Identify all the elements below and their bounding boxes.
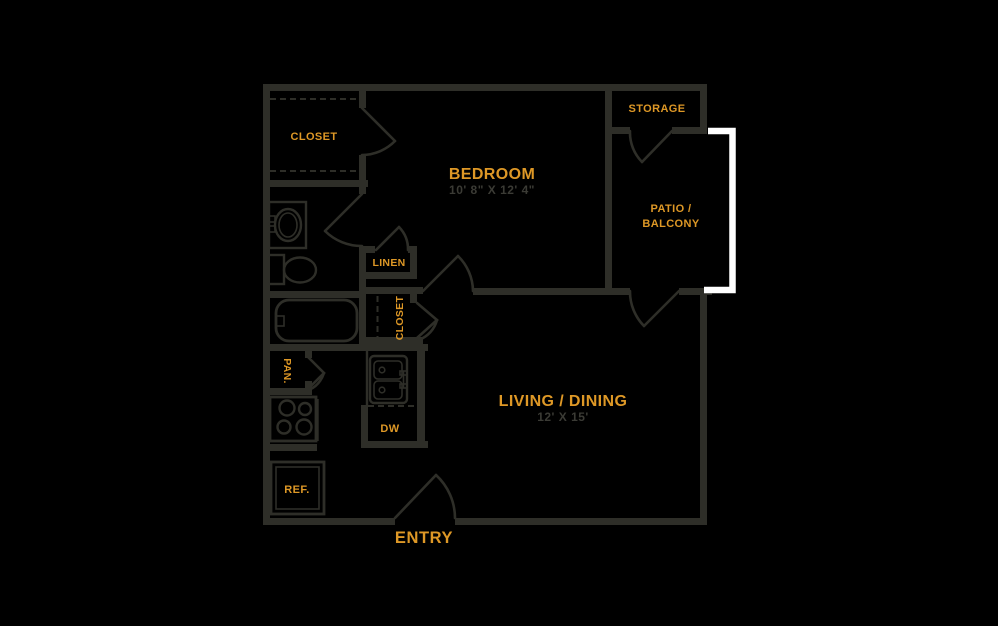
counter-edges: [318, 351, 368, 441]
patio-label-line2: BALCONY: [642, 218, 699, 230]
bathroom-door: [325, 194, 362, 246]
wall-bedroom-south: [473, 288, 630, 295]
bedroom-dimensions: 10' 8" X 12' 4": [449, 183, 535, 197]
wall-closet-right-mid: [359, 155, 366, 194]
pantry-label: PAN.: [281, 358, 293, 384]
entry-label: ENTRY: [395, 529, 453, 547]
dishwasher-label: DW: [380, 423, 399, 435]
floor-plan-page: CLOSET BEDROOM 10' 8" X 12' 4" STORAGE P…: [0, 0, 998, 626]
storage-door: [630, 131, 672, 162]
kitchen-sink-symbol: [370, 356, 407, 403]
linen-door: [376, 227, 408, 250]
wall-bottom-left: [263, 518, 395, 525]
storage-label: STORAGE: [629, 103, 686, 115]
bedroom-closet-door: [362, 108, 395, 155]
walls: [263, 84, 712, 525]
linen-label: LINEN: [373, 257, 406, 269]
refrigerator-label: REF.: [284, 484, 309, 496]
wall-linen-bottom: [359, 272, 417, 279]
wall-hall-closet-right: [410, 287, 417, 303]
wall-counter-left-lower: [361, 405, 368, 448]
wall-toilet-tub-divider: [263, 291, 366, 298]
living-dining-dimensions: 12' X 15': [537, 410, 589, 424]
wall-bottom-right: [455, 518, 707, 525]
wall-right-living: [700, 288, 707, 525]
living-dining-label: LIVING / DINING: [499, 393, 628, 410]
pantry-bifold-door: [308, 357, 324, 390]
wall-pantry-bottom: [263, 388, 312, 395]
wall-left: [263, 84, 270, 525]
wall-counter-right: [417, 348, 425, 447]
wall-top: [263, 84, 707, 91]
stove-symbol: [270, 397, 316, 441]
hall-closet-bifold-door: [417, 303, 437, 340]
bedroom-label: BEDROOM: [449, 166, 535, 183]
patio-railing: [704, 131, 733, 290]
bedroom-door: [423, 256, 473, 291]
bathroom-sink-symbol: [269, 202, 306, 248]
wall-stove-bottom: [263, 444, 317, 451]
labels: CLOSET BEDROOM 10' 8" X 12' 4" STORAGE P…: [281, 103, 700, 547]
entry-door: [395, 475, 455, 518]
wall-linen-left: [359, 246, 366, 345]
bathtub-symbol: [276, 300, 357, 341]
patio-label-line1: PATIO /: [651, 203, 692, 215]
hall-closet-label: CLOSET: [394, 296, 406, 341]
patio-door: [630, 291, 679, 326]
bedroom-closet-label: CLOSET: [290, 131, 337, 143]
wall-closet-bottom: [263, 180, 368, 187]
wall-storage-bottom-b: [672, 127, 707, 134]
wall-bedroom-patio: [605, 84, 612, 295]
floor-plan-canvas: CLOSET BEDROOM 10' 8" X 12' 4" STORAGE P…: [0, 0, 998, 626]
wall-hall-closet-bottom: [359, 337, 423, 344]
toilet-symbol: [267, 255, 316, 284]
wall-kitchen-top: [263, 344, 428, 351]
wall-right-storage: [700, 84, 707, 134]
wall-counter-bottom: [361, 441, 428, 448]
wall-storage-bottom-a: [605, 127, 630, 134]
